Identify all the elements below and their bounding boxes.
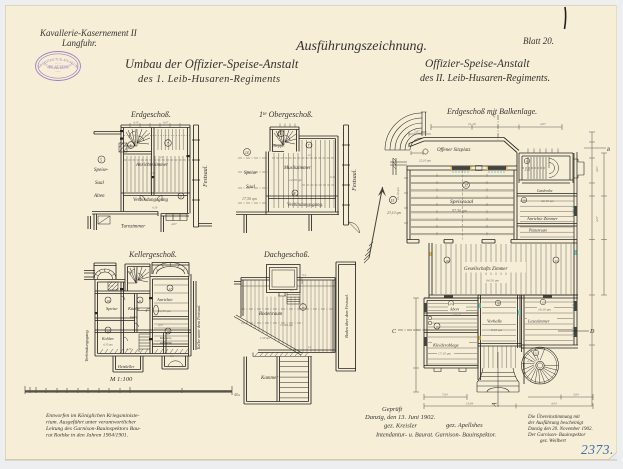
svg-text:Turnzimmer: Turnzimmer — [121, 225, 145, 230]
svg-text:rat Rothke in den Jahren 1904/: rat Rothke in den Jahren 1904/1901. — [46, 433, 128, 439]
svg-text:1te Obergeschoß.: 1te Obergeschoß. — [259, 110, 313, 119]
svg-text:10: 10 — [106, 299, 110, 303]
svg-text:8: 8 — [294, 192, 296, 196]
svg-text:rium. Ausgeführt unter verant: rium. Ausgeführt unter verantwortlicher — [46, 419, 137, 426]
svg-text:Abort: Abort — [449, 307, 460, 312]
svg-text:Speisesaal: Speisesaal — [450, 199, 474, 205]
svg-text:6: 6 — [130, 144, 132, 148]
svg-text:17: 17 — [168, 287, 172, 291]
svg-text:Dachgeschoß.: Dachgeschoß. — [263, 250, 310, 259]
svg-text:Danzig den 20. November 1902.: Danzig den 20. November 1902. — [527, 427, 593, 432]
svg-text:Saal: Saal — [246, 185, 256, 190]
svg-text:Speise: Speise — [244, 171, 258, 176]
svg-text:15: 15 — [554, 259, 558, 263]
svg-text:13: 13 — [541, 301, 545, 305]
svg-text:10: 10 — [279, 132, 283, 136]
svg-text:18: 18 — [166, 330, 170, 334]
svg-text:Boden über dem Festsaal.: Boden über dem Festsaal. — [344, 294, 349, 338]
svg-text:40m: 40m — [234, 392, 241, 397]
svg-text:Die Übereinstimmung mit: Die Übereinstimmung mit — [527, 414, 580, 420]
svg-text:16: 16 — [445, 259, 449, 263]
svg-text:5: 5 — [100, 158, 102, 162]
svg-text:Speise: Speise — [106, 306, 118, 311]
svg-text:Kavallerie-Kasernement II: Kavallerie-Kasernement II — [39, 28, 138, 38]
svg-text:Festsaal.: Festsaal. — [203, 165, 209, 188]
svg-text:Heizkeller: Heizkeller — [117, 364, 135, 369]
svg-text:Erdgeschoß.: Erdgeschoß. — [130, 110, 171, 119]
svg-text:2373.: 2373. — [581, 442, 614, 457]
svg-text:des II. Leib-Husaren-Regiment: des II. Leib-Husaren-Regiments. — [420, 73, 550, 84]
svg-text:Keller unter dem Festsaal.: Keller unter dem Festsaal. — [196, 305, 201, 351]
svg-text:Leitung des Garnison-Bauinspek: Leitung des Garnison-Bauinspektors Bau- — [45, 426, 141, 432]
svg-text:7: 7 — [308, 144, 310, 148]
svg-text:Intendantur- u. Baurat. Garn: Intendantur- u. Baurat. Garnison- Bauins… — [375, 432, 496, 439]
svg-text:Langfuhr.: Langfuhr. — [61, 38, 97, 48]
svg-text:Geprüft: Geprüft — [382, 406, 402, 413]
svg-text:Bodenraum: Bodenraum — [259, 312, 283, 317]
svg-text:Anrichte Zimmer: Anrichte Zimmer — [526, 216, 558, 221]
svg-text:18: 18 — [496, 302, 500, 306]
svg-text:Garderobe: Garderobe — [537, 189, 553, 193]
svg-text:19: 19 — [525, 160, 529, 164]
svg-text:Verbindungsgang: Verbindungsgang — [133, 198, 169, 203]
svg-text:Vorhalle: Vorhalle — [487, 319, 502, 324]
svg-text:des 1. Leib-Husaren-Regiments: des 1. Leib-Husaren-Regiments — [138, 74, 280, 85]
svg-text:——: —— — [54, 70, 61, 73]
svg-text:Ausführungszeichnung.: Ausführungszeichnung. — [295, 39, 427, 54]
svg-text:B: B — [607, 148, 610, 153]
svg-text:Gesellschafts Zimmer: Gesellschafts Zimmer — [464, 267, 508, 272]
svg-text:20: 20 — [301, 306, 305, 310]
svg-text:M 1:100: M 1:100 — [109, 376, 133, 383]
svg-text:der Ausführung bescheinigt: der Ausführung bescheinigt — [528, 421, 584, 426]
svg-text:gez. Apellshes: gez. Apellshes — [446, 422, 483, 429]
svg-text:Offener Sitzplatz: Offener Sitzplatz — [437, 148, 471, 153]
svg-text:12: 12 — [106, 329, 110, 333]
svg-text:Blatt 20.: Blatt 20. — [523, 36, 554, 46]
svg-text:Verbindungsgang: Verbindungsgang — [84, 330, 89, 362]
svg-text:15: 15 — [390, 198, 394, 203]
svg-text:Verbindungsgang.: Verbindungsgang. — [287, 203, 323, 208]
svg-text:22: 22 — [534, 352, 538, 356]
svg-text:Alten: Alten — [93, 194, 105, 199]
svg-text:Plattenraum: Plattenraum — [528, 229, 547, 233]
svg-text:17: 17 — [464, 184, 468, 188]
svg-text:Saal: Saal — [95, 181, 105, 186]
svg-text:Treppe.: Treppe. — [273, 143, 285, 148]
svg-text:Kammer: Kammer — [260, 376, 278, 381]
svg-text:Gang: Gang — [130, 315, 138, 319]
svg-text:14: 14 — [245, 151, 249, 155]
svg-text:Entworfen im Königlichen Krieg: Entworfen im Königlichen Kriegsministe- — [45, 412, 140, 419]
svg-text:Danzig, den 13. Juni 1902.: Danzig, den 13. Juni 1902. — [364, 414, 436, 421]
svg-text:Speise-: Speise- — [94, 168, 109, 173]
svg-text:gez. Weilbert: gez. Weilbert — [540, 439, 567, 444]
svg-text:Musikzimmer: Musikzimmer — [283, 166, 311, 171]
svg-text:gez. Kreisler: gez. Kreisler — [384, 423, 417, 430]
svg-text:Offizier-Speise-Anstalt: Offizier-Speise-Anstalt — [425, 58, 530, 70]
svg-text:14: 14 — [308, 345, 312, 349]
svg-text:Anrichtezimmer: Anrichtezimmer — [135, 163, 168, 168]
svg-text:4,10 qm: 4,10 qm — [452, 314, 461, 317]
svg-text:Kohlen: Kohlen — [101, 336, 114, 341]
svg-text:11: 11 — [138, 299, 141, 303]
svg-text:Kellergeschoß.: Kellergeschoß. — [128, 250, 177, 259]
svg-text:Kleiderablage: Kleiderablage — [432, 343, 459, 348]
svg-text:Der Garnison- Bauinspektor: Der Garnison- Bauinspektor — [527, 433, 586, 438]
svg-text:16: 16 — [435, 325, 439, 329]
svg-text:9: 9 — [180, 195, 182, 199]
svg-text:20: 20 — [522, 199, 526, 203]
svg-text:Lesezimmer: Lesezimmer — [527, 319, 550, 324]
svg-text:Anrichte: Anrichte — [156, 297, 173, 302]
svg-text:Festsaal.: Festsaal. — [352, 169, 358, 192]
svg-text:Umbau der Offizier-Speise-Anst: Umbau der Offizier-Speise-Anstalt — [125, 57, 299, 71]
